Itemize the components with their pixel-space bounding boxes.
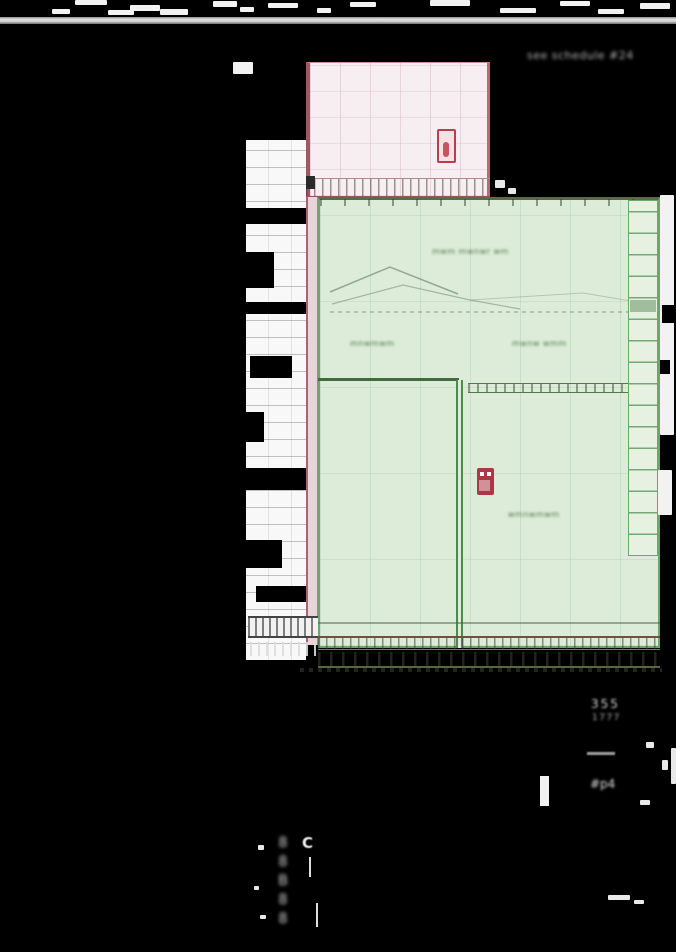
left-dimension-hatch	[248, 616, 318, 638]
lower-hall-label: wmnwmwm	[508, 510, 560, 519]
redacted-fragment	[350, 2, 376, 7]
redacted-fragment	[75, 0, 107, 5]
paper-edge	[658, 470, 672, 515]
elevator-icon[interactable]	[477, 468, 494, 495]
paper-speck	[634, 900, 644, 904]
pink-wall-hatch	[306, 178, 490, 197]
redacted-fragment	[640, 3, 670, 9]
redacted-fragment	[430, 0, 470, 6]
redacted-fragment	[240, 7, 254, 12]
redacted-fragment	[52, 9, 70, 14]
mask-notch	[246, 468, 306, 490]
blueprint-viewer: see schedule #24 mwm mwnwr wm mnwmwm mwn…	[0, 0, 676, 952]
mask-notch	[250, 356, 292, 378]
vertical-legend-glyphs: 8 8 B 8 8	[268, 834, 298, 929]
dimension-line	[318, 622, 660, 624]
paper-speck	[495, 180, 505, 188]
footer-number-small: 1777	[592, 713, 621, 723]
redacted-fragment	[233, 62, 253, 74]
redacted-fragment	[560, 1, 590, 6]
south-wall-ticks	[300, 668, 662, 672]
redacted-fragment	[160, 9, 188, 15]
pink-takeoff-region[interactable]	[306, 62, 490, 197]
footer-tag: #p4	[590, 777, 615, 791]
grid-letter: C	[302, 834, 313, 852]
redacted-fragment	[598, 9, 624, 14]
top-ruler	[0, 17, 676, 24]
left-wall-band	[306, 197, 318, 645]
paper-speck	[608, 895, 630, 900]
paper-speck	[662, 760, 668, 770]
paper-speck	[508, 188, 516, 194]
footer-dash	[587, 752, 615, 755]
stair-compartments	[628, 200, 658, 556]
paper-speck	[258, 845, 264, 850]
redacted-fragment	[108, 10, 134, 15]
scale-bar	[540, 776, 549, 806]
redacted-fragment	[500, 8, 536, 13]
mask-notch	[246, 540, 282, 568]
paper-speck	[671, 748, 676, 784]
sheet-note: see schedule #24	[527, 49, 634, 62]
redacted-fragment	[268, 3, 298, 8]
mask-notch	[246, 302, 306, 314]
paper-speck	[254, 886, 259, 890]
grid-line	[309, 857, 311, 877]
stair-landing	[630, 300, 656, 312]
interior-wall	[318, 378, 459, 381]
upper-hall-right-label: mwnw wmm	[512, 339, 567, 348]
redacted-fragment	[130, 5, 160, 11]
door-tag-icon[interactable]	[437, 129, 456, 163]
upper-hall-label: mwm mwnwr wm	[432, 247, 509, 256]
redacted-fragment	[317, 8, 331, 13]
dimension-hatch	[318, 636, 660, 650]
mask-notch	[246, 412, 264, 442]
left-dimension-hatch	[250, 642, 316, 656]
upper-hall-left-label: mnwmwm	[350, 339, 395, 348]
mask-notch	[246, 252, 274, 288]
grid-line	[316, 903, 318, 927]
paper-speck	[640, 800, 650, 805]
interior-wall-vertical	[456, 380, 463, 648]
wall-marker	[306, 176, 315, 189]
redacted-fragment	[213, 1, 237, 7]
paper-speck	[260, 915, 266, 919]
mask-notch	[246, 208, 306, 224]
footer-number: 355	[591, 697, 620, 711]
roof-ridge-lines	[318, 197, 660, 382]
mask-notch	[660, 360, 670, 374]
dimension-hatch	[318, 652, 660, 668]
mask-notch	[662, 305, 676, 323]
paper-speck	[646, 742, 654, 748]
mask-notch	[256, 586, 306, 602]
